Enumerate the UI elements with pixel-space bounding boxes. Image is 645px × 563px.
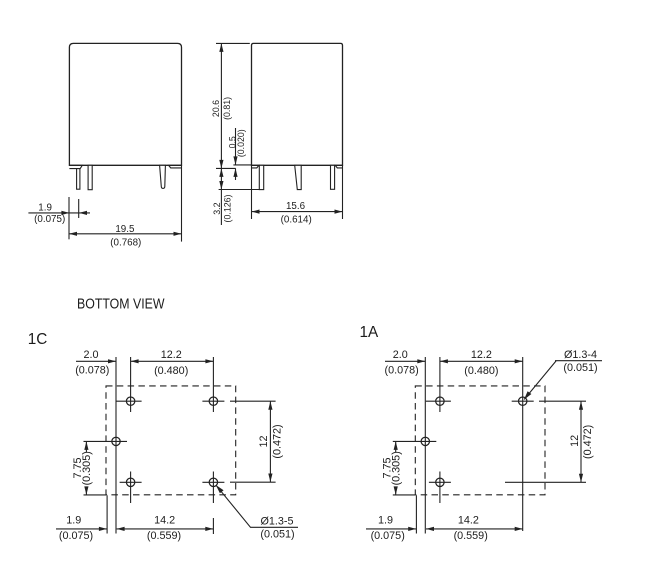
svg-text:1C: 1C bbox=[28, 331, 48, 348]
svg-text:12: 12 bbox=[569, 435, 581, 447]
svg-text:(0.480): (0.480) bbox=[154, 365, 188, 377]
svg-text:3.2: 3.2 bbox=[212, 202, 222, 214]
svg-text:1.9: 1.9 bbox=[38, 203, 52, 214]
svg-text:12.2: 12.2 bbox=[161, 349, 182, 361]
svg-text:(0.472): (0.472) bbox=[272, 424, 284, 458]
svg-text:(0.559): (0.559) bbox=[454, 530, 488, 542]
svg-text:20.6: 20.6 bbox=[211, 100, 221, 117]
svg-text:(0.305): (0.305) bbox=[390, 451, 402, 485]
svg-text:BOTTOM VIEW: BOTTOM VIEW bbox=[77, 296, 165, 312]
svg-text:(0.614): (0.614) bbox=[281, 215, 312, 226]
svg-text:Ø1.3-5: Ø1.3-5 bbox=[260, 516, 293, 528]
svg-text:12.2: 12.2 bbox=[471, 349, 492, 361]
svg-text:12: 12 bbox=[258, 435, 270, 447]
svg-text:(0.075): (0.075) bbox=[34, 214, 65, 225]
svg-text:2.0: 2.0 bbox=[393, 349, 408, 361]
svg-text:(0.480): (0.480) bbox=[464, 365, 498, 377]
svg-text:(0.472): (0.472) bbox=[582, 425, 594, 459]
svg-text:(0.020): (0.020) bbox=[236, 129, 246, 157]
svg-text:(0.305): (0.305) bbox=[81, 451, 93, 485]
svg-text:(0.051): (0.051) bbox=[563, 362, 597, 374]
svg-text:(0.768): (0.768) bbox=[110, 238, 141, 249]
svg-text:(0.078): (0.078) bbox=[384, 365, 418, 377]
svg-text:1.9: 1.9 bbox=[66, 515, 81, 527]
svg-text:19.5: 19.5 bbox=[115, 224, 135, 235]
svg-text:(0.075): (0.075) bbox=[59, 530, 93, 542]
svg-text:14.2: 14.2 bbox=[154, 515, 175, 527]
svg-text:(0.559): (0.559) bbox=[147, 530, 181, 542]
svg-text:(0.126): (0.126) bbox=[222, 194, 232, 222]
svg-text:(0.051): (0.051) bbox=[260, 529, 294, 541]
svg-text:(0.81): (0.81) bbox=[222, 97, 232, 120]
svg-text:Ø1.3-4: Ø1.3-4 bbox=[564, 349, 597, 361]
svg-text:(0.078): (0.078) bbox=[75, 365, 109, 377]
svg-text:1A: 1A bbox=[360, 324, 380, 341]
svg-text:1.9: 1.9 bbox=[378, 515, 393, 527]
svg-text:14.2: 14.2 bbox=[458, 515, 479, 527]
svg-text:15.6: 15.6 bbox=[286, 201, 306, 212]
svg-text:2.0: 2.0 bbox=[83, 349, 98, 361]
svg-text:(0.075): (0.075) bbox=[371, 530, 405, 542]
